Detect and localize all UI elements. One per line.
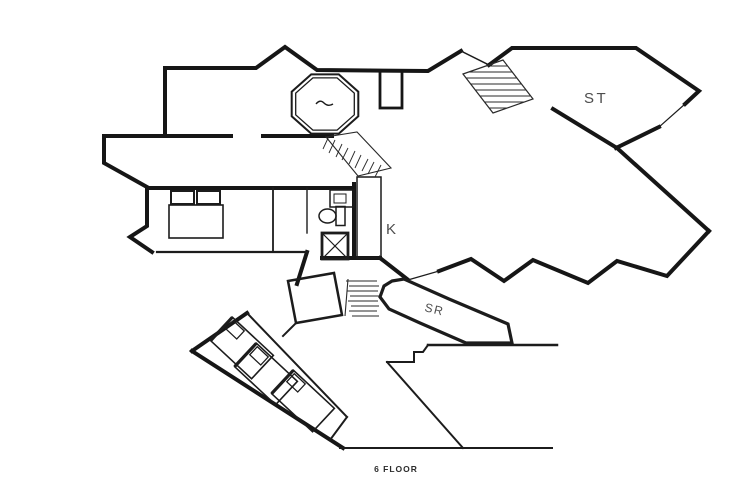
wall-segment-door: [461, 51, 489, 65]
toilet: [319, 207, 345, 226]
closet: [380, 71, 402, 108]
storage-room-walls: [380, 279, 512, 343]
upper-staircase: [463, 60, 533, 113]
spa-water-mark: [316, 101, 333, 105]
bed-body: [169, 205, 223, 238]
room-label-st: ST: [584, 90, 608, 107]
wall-segment: [408, 271, 439, 280]
wall-chase: [357, 177, 381, 258]
wall-segment-sawtooth: [439, 231, 709, 283]
wall-segment: [192, 351, 343, 448]
stair-outline: [326, 132, 391, 176]
wall-segment: [553, 109, 617, 148]
bunk-bed-3: [272, 370, 335, 432]
wall-segment: [616, 127, 659, 148]
outer-walls: [104, 47, 709, 448]
wall-segment: [617, 148, 709, 231]
bathroom: [319, 190, 354, 259]
wall-segment: [330, 417, 347, 440]
room-label-sr: SR: [423, 300, 445, 318]
sink-vanity: [330, 190, 354, 207]
wall-segment: [247, 313, 347, 417]
wall-segment: [387, 345, 428, 362]
stair-outline: [463, 60, 533, 113]
bed-pillow: [171, 191, 194, 204]
stair-treads: [466, 66, 530, 108]
stair-treads: [323, 136, 381, 177]
floor-caption: 6 FLOOR: [374, 464, 418, 474]
wall-segment: [283, 323, 296, 336]
room-label-k: K: [386, 221, 399, 238]
bed-pillow: [197, 191, 220, 204]
interior-walls: [157, 51, 685, 448]
wall-segment-door: [659, 104, 685, 127]
wall-segment: [104, 136, 147, 187]
double-bed: [169, 191, 223, 238]
wall-segment: [387, 362, 463, 448]
side-staircase: [323, 132, 391, 177]
wall-segment: [380, 258, 407, 279]
floor-plan: ST K SR 6 FLOOR: [0, 0, 750, 500]
wall-segment: [130, 188, 152, 252]
winder-staircase: [345, 279, 380, 316]
landing-room: [288, 273, 342, 323]
octagonal-spa: [292, 74, 359, 133]
shower: [322, 233, 348, 259]
wall-segment: [165, 47, 461, 71]
floor-plan-canvas: ST K SR 6 FLOOR: [0, 0, 750, 500]
